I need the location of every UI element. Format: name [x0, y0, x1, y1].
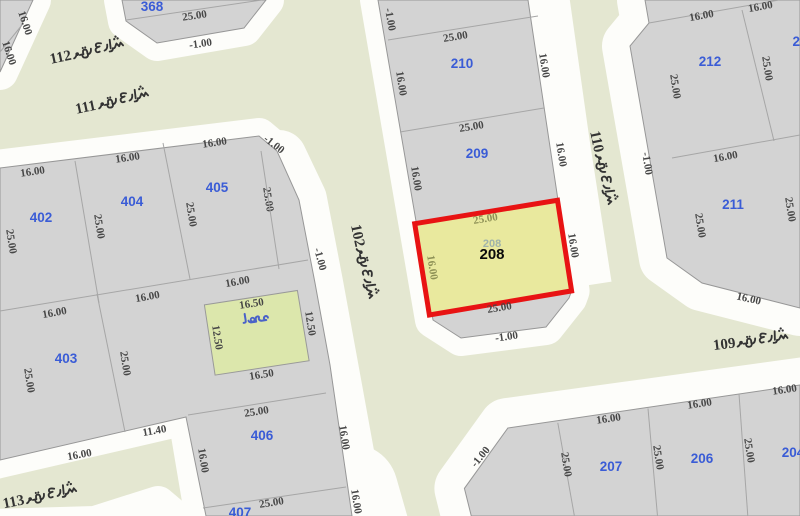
- svg-text:406: 406: [251, 428, 274, 443]
- svg-text:21: 21: [792, 34, 800, 49]
- svg-text:206: 206: [691, 451, 714, 466]
- svg-text:402: 402: [30, 210, 53, 225]
- svg-text:109: 109: [712, 335, 736, 354]
- svg-text:208: 208: [479, 246, 504, 263]
- svg-text:403: 403: [55, 351, 78, 366]
- svg-text:211: 211: [722, 197, 744, 212]
- svg-text:212: 212: [699, 54, 722, 69]
- svg-text:209: 209: [466, 146, 489, 161]
- svg-text:210: 210: [451, 56, 474, 71]
- svg-text:404: 404: [121, 194, 144, 209]
- svg-text:407: 407: [229, 505, 252, 516]
- svg-text:204: 204: [782, 445, 800, 460]
- svg-text:368: 368: [141, 0, 164, 14]
- svg-text:405: 405: [206, 180, 229, 195]
- svg-text:207: 207: [600, 459, 623, 474]
